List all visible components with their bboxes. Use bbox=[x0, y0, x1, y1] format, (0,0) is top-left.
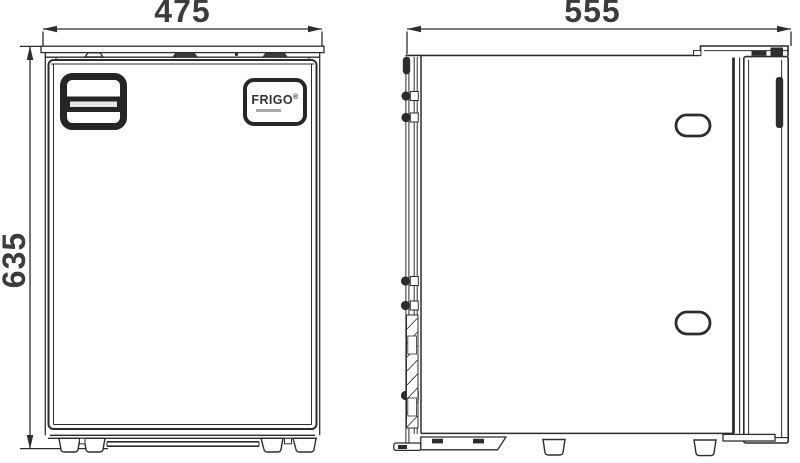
side-back-rails bbox=[401, 57, 418, 443]
brand-badge: FRIGO® bbox=[243, 78, 307, 126]
vent-slots bbox=[676, 115, 710, 334]
back-rail-pin bbox=[403, 57, 410, 75]
door-handle bbox=[62, 77, 125, 127]
side-foot-1 bbox=[543, 440, 565, 456]
handle-grip-slot bbox=[70, 102, 117, 108]
top-tab-left bbox=[85, 53, 103, 57]
side-cabinet-body bbox=[406, 55, 740, 433]
side-top-flange bbox=[694, 46, 789, 56]
side-handle-profile bbox=[776, 77, 783, 128]
top-screw-dot bbox=[235, 52, 238, 56]
drawing-linework bbox=[0, 0, 800, 463]
front-foot-4 bbox=[293, 438, 316, 452]
hinge-block-2 bbox=[771, 48, 784, 57]
front-top-cap bbox=[41, 46, 324, 60]
vent-slot-top bbox=[676, 115, 710, 136]
technical-drawing-canvas: 475 555 635 FRIGO® bbox=[0, 0, 800, 463]
back-base-bracket bbox=[394, 443, 421, 450]
side-foot-2 bbox=[694, 440, 716, 456]
front-foot-1 bbox=[59, 438, 80, 452]
front-base-rail bbox=[107, 442, 259, 446]
front-foot-3 bbox=[261, 438, 283, 452]
side-door-panel bbox=[744, 57, 788, 443]
registered-mark: ® bbox=[293, 94, 299, 101]
top-tab-middle bbox=[173, 53, 197, 57]
under-door-base bbox=[723, 434, 775, 441]
vent-slot-bottom bbox=[676, 312, 710, 334]
dimension-depth-line bbox=[407, 26, 791, 54]
dimension-label-height: 635 bbox=[0, 210, 31, 310]
front-foot-2 bbox=[84, 438, 105, 452]
hinge-block-1 bbox=[752, 51, 767, 56]
dimension-label-depth: 555 bbox=[537, 0, 648, 28]
dimension-label-width: 475 bbox=[127, 0, 238, 28]
top-tab-right bbox=[263, 53, 287, 57]
side-view bbox=[394, 26, 791, 456]
side-base bbox=[394, 434, 775, 455]
brand-text: FRIGO® bbox=[251, 92, 298, 106]
back-hinge-bracket bbox=[407, 315, 419, 428]
front-base bbox=[48, 435, 317, 452]
brand-subtext-line bbox=[256, 109, 281, 112]
